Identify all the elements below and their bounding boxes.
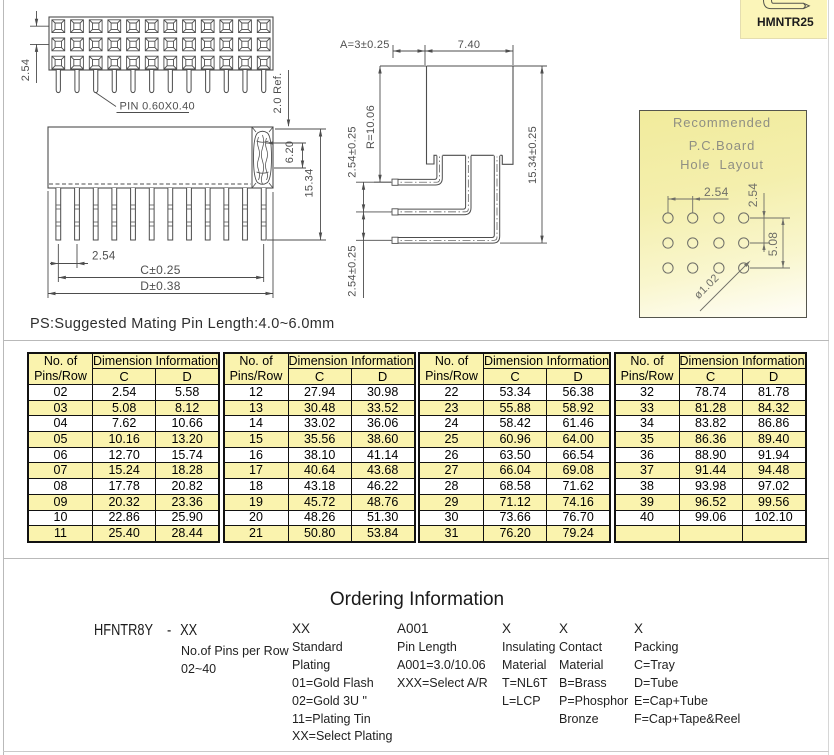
svg-text:5.08: 5.08 <box>766 232 780 257</box>
svg-text:2.54: 2.54 <box>746 183 760 208</box>
svg-text:2.54: 2.54 <box>704 185 729 199</box>
svg-text:ø1.02: ø1.02 <box>692 272 721 301</box>
